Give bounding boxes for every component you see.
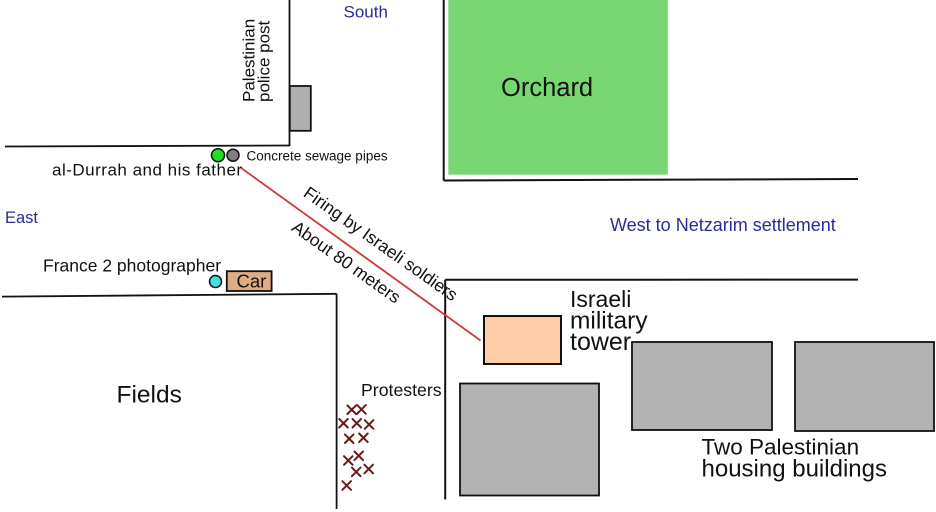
svg-text:Orchard: Orchard xyxy=(501,74,593,102)
svg-text:Concrete sewage pipes: Concrete sewage pipes xyxy=(247,149,388,164)
svg-text:housing buildings: housing buildings xyxy=(702,455,887,482)
svg-text:East: East xyxy=(5,209,38,227)
svg-text:West to Netzarim settlement: West to Netzarim settlement xyxy=(610,215,836,235)
svg-text:Fields: Fields xyxy=(117,382,182,409)
svg-text:Protesters: Protesters xyxy=(361,380,442,400)
svg-text:tower: tower xyxy=(570,328,631,356)
svg-text:al-Durrah and his father: al-Durrah and his father xyxy=(52,161,243,180)
svg-text:France 2 photographer: France 2 photographer xyxy=(43,255,221,275)
svg-text:police post: police post xyxy=(255,20,274,102)
svg-text:South: South xyxy=(344,3,388,22)
svg-text:Car: Car xyxy=(237,271,267,292)
